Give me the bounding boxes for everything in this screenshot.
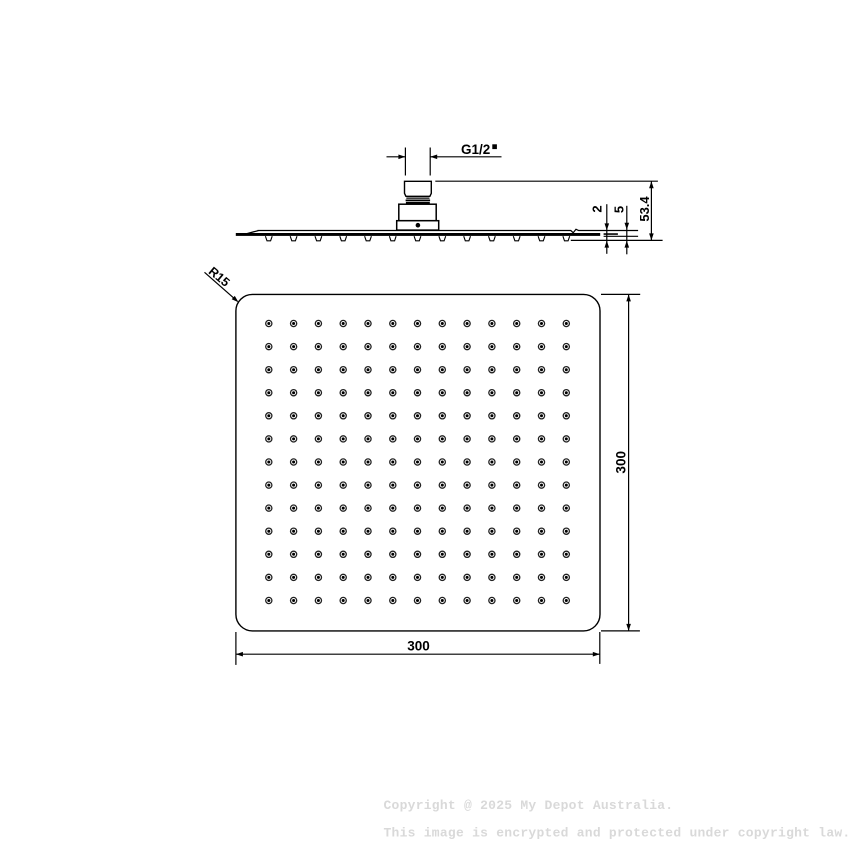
svg-text:300: 300 <box>407 639 430 654</box>
svg-text:G1/2: G1/2 <box>461 142 490 157</box>
svg-text:Copyright @ 2025 My Depot Aust: Copyright @ 2025 My Depot Australia. <box>384 798 674 813</box>
svg-text:300: 300 <box>614 451 629 474</box>
svg-text:5: 5 <box>611 206 626 213</box>
svg-text:2: 2 <box>589 205 604 212</box>
svg-text:53.4: 53.4 <box>637 196 652 222</box>
svg-text:This image is encrypted and pr: This image is encrypted and protected un… <box>384 826 850 841</box>
